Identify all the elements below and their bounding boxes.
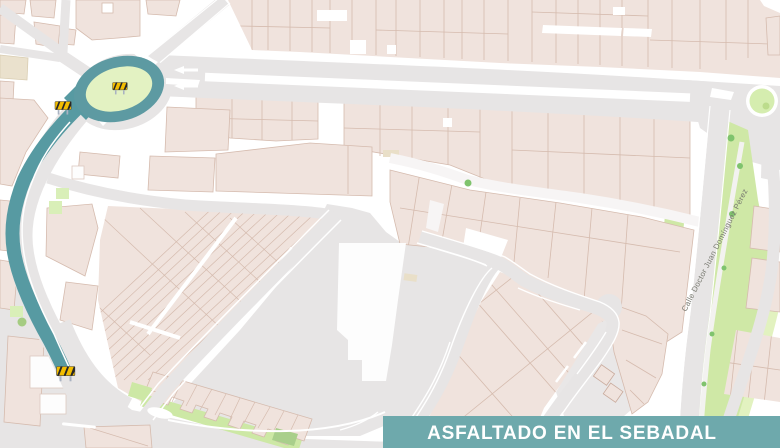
svg-text:ASFALTADO EN EL SEBADAL: ASFALTADO EN EL SEBADAL bbox=[427, 423, 717, 444]
